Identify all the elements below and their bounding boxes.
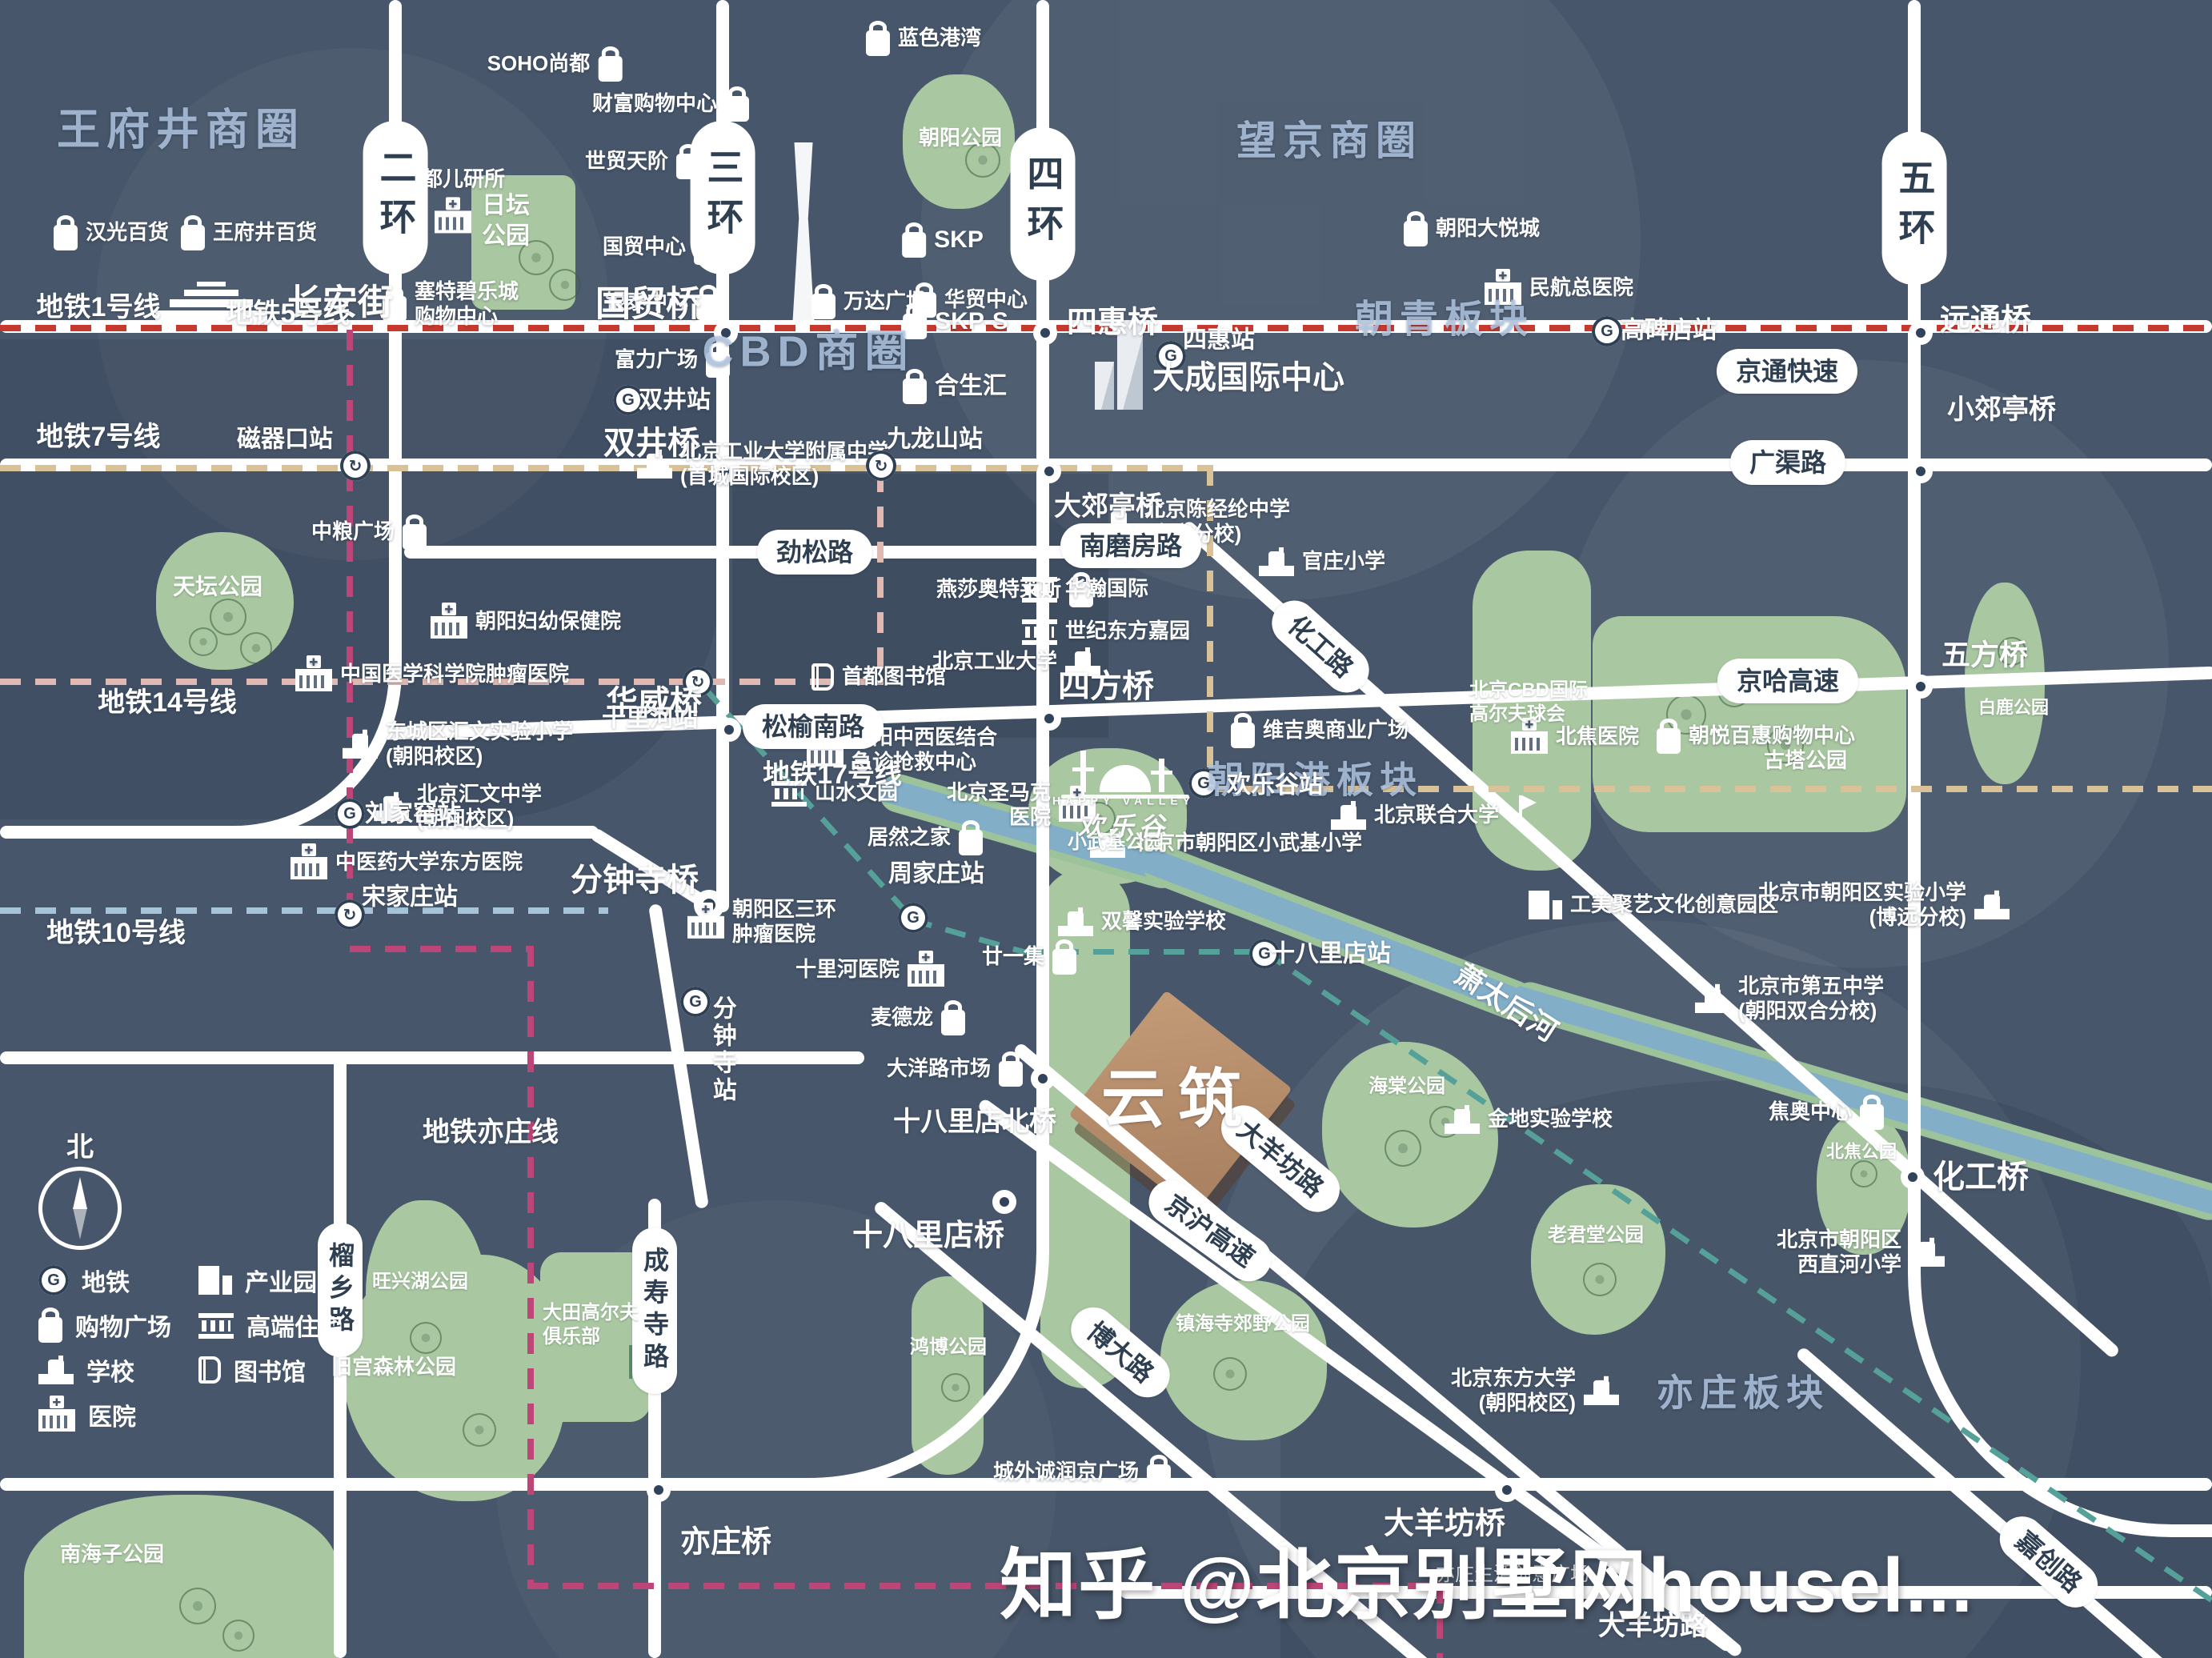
label-shibalidian-station: 十八里店站 [1271,939,1391,969]
poi-label: 北京市朝阳区 西直河小学 [1777,1227,1901,1277]
label-gaobeidian-station: 高碑店站 [1621,315,1717,346]
poi-label: SOHO尚都 [487,51,591,76]
poi-label: 财富购物中心 [592,91,717,116]
label-huagongqiao: 化工桥 [1933,1157,2029,1197]
badge-4th-ring: 四环 [1011,127,1076,281]
poi: 工美聚艺文化创意园区 [1529,891,1778,919]
park-label-bailu: 白鹿公园 [1978,696,2049,719]
park-label-cbd-golf: 北京CBD国际 高尔夫球会 [1469,679,1588,727]
poi: 大洋路市场 [887,1051,1023,1087]
legend-icon [38,1265,69,1296]
park-label-laojuntang: 老君堂公园 [1548,1223,1644,1248]
line7-dash-a [0,465,1213,471]
poi-label: 首都图书馆 [842,664,946,689]
tree-icon [179,1588,216,1624]
label-line7: 地铁7号线 [37,420,161,455]
poi-icon [866,30,890,56]
poi: 北京市第五中学 (朝阳双合分校) [1695,974,1884,1023]
poi-label: 居然之家 [868,825,951,850]
yizhuang-line-dash-b [527,946,534,1588]
park-label-zhenhaisi: 镇海寺郊野公园 [1176,1312,1310,1336]
legend-label: 学校 [86,1352,134,1388]
poi: 双馨实验学校 [1058,907,1226,936]
zhenhaisi-park [1160,1280,1327,1440]
label-liujiayao-station: 刘家窑站 [365,799,461,829]
node-sifangqiao [1037,707,1061,731]
poi-icon [1259,547,1294,576]
poi-icon [1445,1105,1480,1134]
area-chaoqing: 朝青板块 [1355,296,1534,344]
station-zhoujiazhuang: G [898,903,928,933]
poi-label: 东城区汇文实验小学 (朝阳校区) [386,719,573,769]
legend-icon [198,1312,234,1339]
poi-icon [1657,728,1681,754]
site-label: 云筑 [1101,1059,1255,1139]
pill-nanmofang-rd: 南磨房路 [1060,523,1201,568]
node-yuantongqiao [1909,321,1933,345]
node-yizhuangqiao [647,1478,671,1502]
park-label-guta: 古塔公园 [1764,747,1847,774]
label-jiulongshan-station: 九龙山站 [887,424,983,455]
label-line10: 地铁10号线 [46,916,186,951]
poi: 汉光百货 [54,215,169,250]
poi-label: 合生汇 [935,372,1007,401]
poi: SKP-S [903,304,1008,339]
label-wufangqiao: 五方桥 [1942,637,2028,673]
tree-icon [1213,1357,1247,1391]
park-label-nanhaizi: 南海子公园 [60,1541,164,1568]
poi-label: 北京市朝阳区实验小学 (博远分校) [1758,880,1966,930]
pill-jingha-expwy: 京哈高速 [1717,659,1858,703]
poi-label: 北京工业大学附属中学 (首城国际校区) [680,439,888,489]
area-yizhuang: 亦庄板块 [1657,1370,1829,1416]
poi: 北京联合大学 [1331,801,1499,830]
poi-icon [1511,731,1548,754]
poi-label: 焦奥中心 [1769,1099,1852,1124]
legend-icon [38,1356,74,1384]
poi-icon [908,964,944,987]
poi-icon [1974,891,2010,919]
poi-label: 金地实验学校 [1488,1107,1613,1131]
poi-icon [999,1061,1023,1087]
label-shibalidianqiao: 十八里店桥 [852,1217,1004,1256]
poi-label: 富力广场 [615,347,698,372]
poi-label: 世纪东方嘉园 [1065,619,1190,643]
poi-icon [291,857,327,879]
laojuntang-park [1531,1184,1665,1335]
poi-label: 塞特碧乐城 购物中心 [415,279,519,329]
poi-label: 朝阳大悦城 [1436,216,1540,241]
node-huagongqiao [1901,1165,1925,1189]
poi-icon [181,225,205,250]
node-shibalidianqiao [992,1190,1016,1214]
poi: 朝阳妇幼保健院 [431,605,621,639]
poi-label: 中国医学科学院肿瘤医院 [340,662,569,687]
label-north: 北 [66,1131,94,1165]
golf-flag-cbd [1519,795,1522,829]
tree-icon [222,1620,254,1652]
pill-songyu-south-rd: 松榆南路 [743,704,884,749]
poi: 首都图书馆 [811,663,946,691]
label-shibalidian-north: 十八里店北桥 [893,1105,1056,1139]
poi-label: 北京圣马克 医院 [947,780,1051,830]
label-yizhuangqiao: 亦庄桥 [680,1524,771,1562]
poi-icon [54,225,78,250]
beijing-location-map: 汉光百货 王府井百货 SOHO尚都 财富购物中心 世贸天阶 国贸中心 蓝色港湾 … [0,0,2212,1658]
legend-library: 图书馆 [198,1352,306,1388]
poi-label: 中医药大学东方医院 [335,850,523,875]
poi-icon [1529,891,1562,919]
poi: 朝阳区三环 肿瘤医院 [687,897,836,947]
poi-icon [1584,1376,1619,1405]
node-dayangfangqiao [1495,1478,1519,1502]
label-shilihe-station: 十里河站 [602,703,698,734]
poi: 官庄小学 [1259,547,1385,576]
poi-icon [1022,618,1057,645]
label-sihui-station: 四惠站 [1183,325,1255,355]
legend-hospital: 医院 [38,1397,136,1432]
poi-label: 朝阳区三环 肿瘤医院 [732,897,836,947]
label-huanlegu-station: 欢乐谷站 [1227,770,1323,800]
poi: 维吉奥商业广场 [1231,713,1409,748]
poi-icon [941,1010,965,1035]
poi-icon [903,378,927,404]
pill-jinsong-rd: 劲松路 [757,530,872,575]
tree-icon [410,1322,442,1354]
poi-label: 麦德龙 [871,1005,933,1030]
node-dajiaotingqiao [1037,459,1061,483]
poi: 王府井百货 [181,215,317,250]
poi-label: SKP [934,226,984,254]
poi: 中国医学科学院肿瘤医院 [295,658,569,691]
station-gaobeidian: G [1592,316,1622,346]
tree-icon [549,269,581,301]
label-yuantongqiao: 远通桥 [1940,302,2031,340]
poi: 麦德龙 [871,1000,965,1035]
park-label-wangxinghu: 旺兴湖公园 [372,1270,468,1294]
poi: 十里河医院 [795,953,944,987]
legend-label: 医院 [88,1397,136,1432]
label-zhoujiazhuang-station: 周家庄站 [888,859,984,889]
station-songjiazhuang: ↻ [335,899,365,930]
label-guomaoqiao: 国贸桥 [595,282,701,326]
poi-label: 民航总医院 [1529,275,1633,300]
poi-label: 北京东方大学 (朝阳校区) [1451,1366,1576,1416]
park-label-datian-golf: 大田高尔夫 俱乐部 [543,1301,639,1349]
label-yizhuang-line: 地铁亦庄线 [423,1115,559,1150]
poi-icon [1860,1104,1884,1130]
poi: 世贸天阶 [585,144,700,179]
poi-label: 大洋路市场 [887,1056,991,1081]
tree-icon [463,1413,496,1447]
poi-label: 工美聚艺文化创意园区 [1570,892,1778,917]
node-songyunanlu [717,718,741,742]
poi-icon [1331,801,1366,830]
legend-icon [198,1356,221,1384]
poi: 中医药大学东方医院 [291,846,523,879]
poi-icon [811,294,836,319]
poi: 合生汇 [903,369,1007,404]
poi-label: 北京工业大学 [932,649,1057,674]
poi-icon [295,669,332,691]
poi: 财富购物中心 [592,86,749,122]
pill-jingtong-expwy: 京通快速 [1717,349,1857,394]
pill-guangqu-rd: 广渠路 [1730,440,1845,485]
label-line17: 地铁17号线 [763,758,902,792]
legend-icon [38,1317,62,1343]
label-line5: 地铁5号线 [226,297,351,331]
poi-label: 朝阳妇幼保健院 [475,609,621,634]
road-2nd-ring-curve [227,448,402,839]
park-label-hongbo: 鸿博公园 [910,1336,987,1360]
poi-label: 北焦医院 [1556,724,1639,749]
poi-icon [1147,1464,1171,1490]
poi-label: 中粮广场 [311,519,395,544]
park-label-ritan: 日坛 公园 [482,191,530,251]
label-dajiaotingqiao: 大郊亭桥 [1054,490,1163,524]
line10-dash [0,907,608,914]
legend-icon [198,1266,232,1295]
legend-label: 产业园 [245,1263,317,1298]
pill-huagong-rd: 化工路 [1263,591,1378,702]
legend-school: 学校 [38,1352,134,1388]
poi-icon [343,730,378,759]
line14-dash-b [877,471,884,685]
poi: 城外诚润京广场 [993,1455,1171,1490]
label-songjiazhuang-station: 宋家庄站 [362,882,458,912]
tree-icon [1385,1130,1421,1167]
poi-label: 城外诚润京广场 [993,1460,1139,1484]
poi-icon [1404,221,1428,246]
label-shuangjing-station: 双井站 [639,385,711,415]
label-shuangjingqiao: 双井桥 [603,423,699,463]
compass-icon [38,1167,122,1250]
poi-label: 十里河医院 [795,957,900,982]
poi-label: 廿一集 [982,944,1044,969]
poi-icon [435,211,471,234]
poi-label: SKP-S [935,307,1008,336]
legend-label: 购物广场 [75,1308,171,1343]
poi-icon [1695,984,1730,1013]
poi-icon [1231,723,1255,748]
area-wangfujing: 王府井商圈 [57,103,305,158]
poi-label: 国贸中心 [603,234,686,259]
poi: 华瀚国际 [1022,575,1148,603]
label-ciqikou-station: 磁器口站 [237,424,333,455]
legend-metro: 地铁 [38,1263,130,1298]
poi: 中粮广场 [311,515,427,550]
poi-icon [403,524,427,550]
park-label-chaoyang: 朝阳公园 [919,125,1002,151]
poi-label: 朝悦百惠购物中心 [1689,723,1855,748]
legend-label: 地铁 [82,1263,130,1298]
area-wangjing: 望京商圈 [1236,116,1422,166]
poi-icon [687,916,724,939]
poi: 蓝色港湾 [866,21,981,56]
poi-icon [431,616,467,639]
poi: 朝阳大悦城 [1404,211,1540,246]
label-fenzhongsi-station: 分钟寺站 [707,995,737,1104]
poi-label: 华瀚国际 [1065,576,1148,601]
label-sifangqiao: 四方桥 [1058,667,1154,707]
poi-icon [1058,907,1093,936]
label-line1: 地铁1号线 [37,290,161,325]
node-sihuiqiao [1033,321,1057,345]
poi-label: 官庄小学 [1302,549,1385,574]
poi-icon [1052,949,1076,975]
label-xiaojiaotingqiao: 小郊亭桥 [1947,393,2056,427]
legend-industry: 产业园 [198,1263,317,1298]
hv-en: HAPPY VALLEY [1052,794,1195,808]
tree-icon [1583,1263,1617,1296]
poi-label: 世贸天阶 [585,149,668,174]
legend-icon [38,1409,75,1432]
poi: 焦奥中心 [1769,1095,1884,1130]
poi: SKP [902,222,984,258]
poi-label: 维吉奥商业广场 [1263,718,1409,743]
poi-icon [1909,1238,1945,1267]
legend-estate: 高端住宅 [198,1308,343,1343]
label-line14: 地铁14号线 [98,686,237,720]
poi: 世纪东方嘉园 [1022,618,1190,645]
dacheng-tower-small-icon [1095,362,1114,410]
badge-2nd-ring: 二环 [363,121,428,274]
poi: 金地实验学校 [1445,1105,1613,1134]
label-dacheng-intl: 大成国际中心 [1152,358,1344,398]
hv-zh: 欢乐谷 [1078,811,1169,843]
badge-5th-ring: 五环 [1882,131,1947,285]
node-wufangqiao [1909,675,1933,699]
tree-icon [1850,1160,1877,1187]
area-cbd: CBD商圈 [703,325,915,379]
poi-label: 蓝色港湾 [898,26,981,50]
park-label-jiugong: 旧宫森林公园 [331,1354,456,1380]
poi-label: 王府井百货 [213,220,317,245]
park-label-tiantan: 天坛公园 [173,573,262,601]
watermark: 知乎 @北京别墅网housel... [1000,1538,1974,1634]
poi-label: 双馨实验学校 [1101,909,1226,934]
station-liujiayao: G [335,799,365,829]
poi: 廿一集 [982,939,1076,975]
poi: 北京市朝阳区 西直河小学 [1777,1227,1945,1277]
poi: SOHO尚都 [487,46,623,82]
legend-label: 高端住宅 [246,1308,343,1343]
station-jiulongshan: ↻ [866,451,896,481]
poi: 北京市朝阳区实验小学 (博远分校) [1758,880,2010,930]
poi-icon [811,663,834,691]
station-ciqikou: ↻ [340,451,371,481]
poi-label: 北京市第五中学 (朝阳双合分校) [1738,974,1884,1023]
yizhuang-line-dash-a [350,946,534,952]
road-4th-ring-curve [740,1079,1049,1491]
poi-icon [1022,575,1057,603]
poi-icon [959,830,983,855]
poi: 北京东方大学 (朝阳校区) [1451,1366,1619,1416]
tree-icon [189,627,218,656]
legend-mall: 购物广场 [38,1308,171,1343]
park-label-beijiao: 北焦公园 [1826,1140,1897,1163]
node-shibalidian-north [1031,1067,1055,1091]
poi: 东城区汇文实验小学 (朝阳校区) [343,719,573,769]
label-fenzhongsiqiao: 分钟寺桥 [571,860,699,900]
label-sihuiqiao: 四惠桥 [1067,304,1158,342]
poi-icon [725,96,749,122]
line5-dash [347,330,353,922]
park-label-haitang: 海棠公园 [1368,1075,1445,1099]
poi-label: 汉光百货 [86,220,169,245]
node-xiaojiaotingqiao [1909,459,1933,483]
poi-icon [902,232,926,258]
legend-label: 图书馆 [234,1352,306,1388]
badge-3rd-ring: 三环 [691,121,755,274]
nanhaizi-park [24,1495,338,1658]
poi: 塞特碧乐城 购物中心 [383,279,519,329]
poi-icon [598,56,622,82]
poi-label: 北京联合大学 [1374,803,1499,827]
pill-chengshousi-rd: 成寿寺路 [632,1227,677,1394]
